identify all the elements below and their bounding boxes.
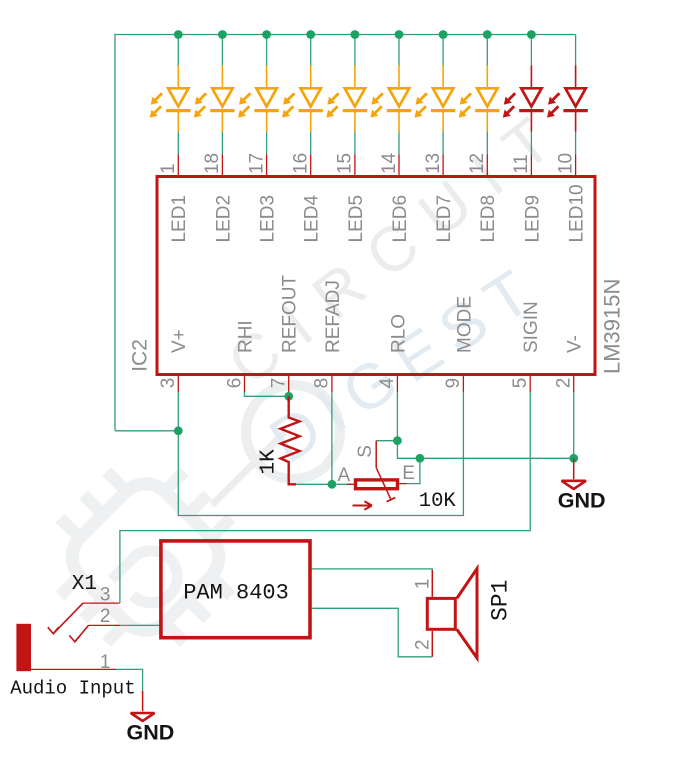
- svg-text:14: 14: [379, 152, 400, 174]
- svg-text:2: 2: [100, 606, 111, 627]
- svg-text:18: 18: [202, 153, 223, 174]
- svg-text:10K: 10K: [419, 490, 457, 513]
- svg-text:10: 10: [555, 153, 576, 174]
- svg-text:PAM 8403: PAM 8403: [183, 581, 289, 606]
- svg-text:13: 13: [423, 153, 444, 174]
- svg-text:X1: X1: [72, 573, 97, 596]
- svg-text:3: 3: [158, 378, 179, 389]
- svg-text:2: 2: [554, 378, 575, 389]
- svg-text:4: 4: [377, 377, 398, 388]
- svg-text:REFADJ: REFADJ: [323, 280, 344, 353]
- svg-text:6: 6: [224, 378, 245, 389]
- svg-text:LED5: LED5: [346, 195, 367, 243]
- svg-text:LED6: LED6: [390, 195, 411, 243]
- svg-text:11: 11: [511, 154, 532, 174]
- svg-text:2: 2: [413, 639, 434, 650]
- svg-text:V-: V-: [565, 335, 586, 353]
- svg-text:3: 3: [100, 584, 111, 605]
- svg-text:LED1: LED1: [169, 195, 190, 243]
- svg-text:S: S: [355, 445, 376, 458]
- svg-text:12: 12: [467, 153, 488, 174]
- svg-text:LED9: LED9: [522, 195, 543, 243]
- svg-text:8: 8: [312, 378, 333, 389]
- svg-text:V+: V+: [169, 329, 190, 353]
- svg-text:17: 17: [246, 153, 267, 174]
- svg-text:1: 1: [100, 652, 111, 673]
- svg-text:9: 9: [443, 378, 464, 389]
- svg-text:LED7: LED7: [434, 195, 455, 243]
- svg-text:LED3: LED3: [258, 195, 279, 243]
- svg-text:RLO: RLO: [388, 314, 409, 353]
- svg-text:GND: GND: [127, 721, 175, 745]
- svg-text:RHI: RHI: [235, 320, 256, 353]
- svg-text:5: 5: [510, 378, 531, 389]
- svg-text:1: 1: [413, 579, 434, 590]
- svg-text:E: E: [402, 463, 415, 484]
- svg-text:LM3915N: LM3915N: [599, 279, 624, 374]
- svg-text:SP1: SP1: [488, 580, 514, 621]
- svg-text:LED8: LED8: [478, 195, 499, 243]
- svg-text:7: 7: [269, 378, 290, 389]
- svg-text:16: 16: [291, 153, 312, 174]
- svg-text:15: 15: [335, 153, 356, 174]
- svg-text:REFOUT: REFOUT: [280, 275, 301, 354]
- svg-text:MODE: MODE: [454, 296, 475, 353]
- svg-text:1: 1: [158, 163, 179, 174]
- svg-text:A: A: [338, 465, 351, 486]
- svg-text:SIGIN: SIGIN: [521, 301, 542, 353]
- svg-text:1K: 1K: [258, 449, 281, 475]
- svg-text:LED10: LED10: [567, 184, 588, 242]
- svg-text:LED4: LED4: [302, 195, 323, 243]
- svg-text:GND: GND: [558, 489, 606, 513]
- svg-text:LED2: LED2: [213, 195, 234, 243]
- svg-text:IC2: IC2: [129, 339, 152, 372]
- svg-text:Audio Input: Audio Input: [10, 678, 135, 700]
